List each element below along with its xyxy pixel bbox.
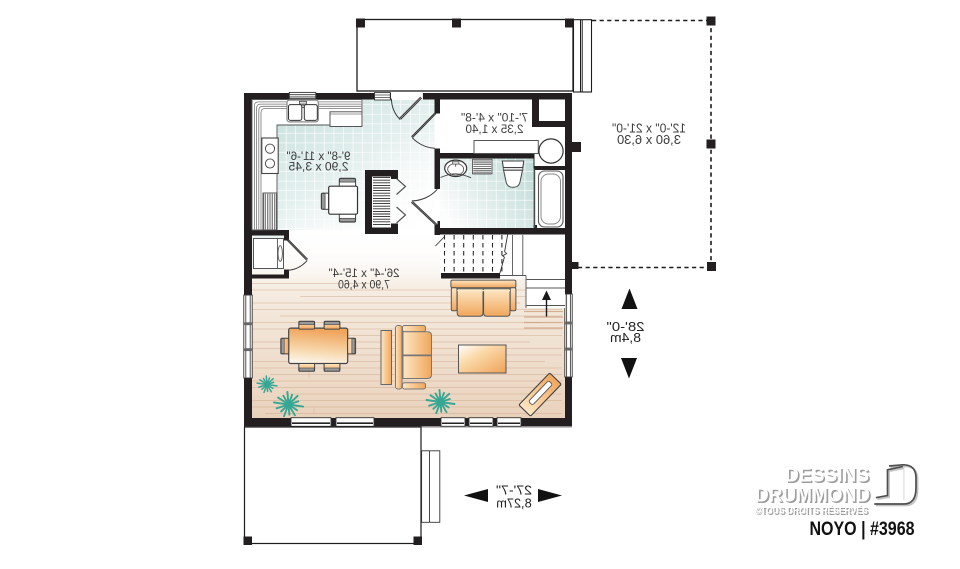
svg-text:8,27m: 8,27m [496, 496, 532, 511]
svg-text:8,4m: 8,4m [610, 330, 641, 345]
svg-text:7,90 x 4,60: 7,90 x 4,60 [338, 278, 390, 292]
svg-text:2,90 x 3,45: 2,90 x 3,45 [288, 160, 348, 174]
svg-text:7'-10" x 4'-8": 7'-10" x 4'-8" [461, 112, 528, 124]
svg-text:DESSINS: DESSINS [785, 465, 869, 487]
svg-text:©TOUS DROITS RÉSERVÉS: ©TOUS DROITS RÉSERVÉS [755, 504, 868, 517]
svg-text:3,60 x 6,30: 3,60 x 6,30 [617, 133, 681, 147]
svg-text:2,35 x 1,40: 2,35 x 1,40 [466, 124, 524, 136]
svg-text:DRUMMOND: DRUMMOND [755, 485, 870, 507]
svg-text:NOYO | #3968: NOYO | #3968 [810, 518, 915, 540]
